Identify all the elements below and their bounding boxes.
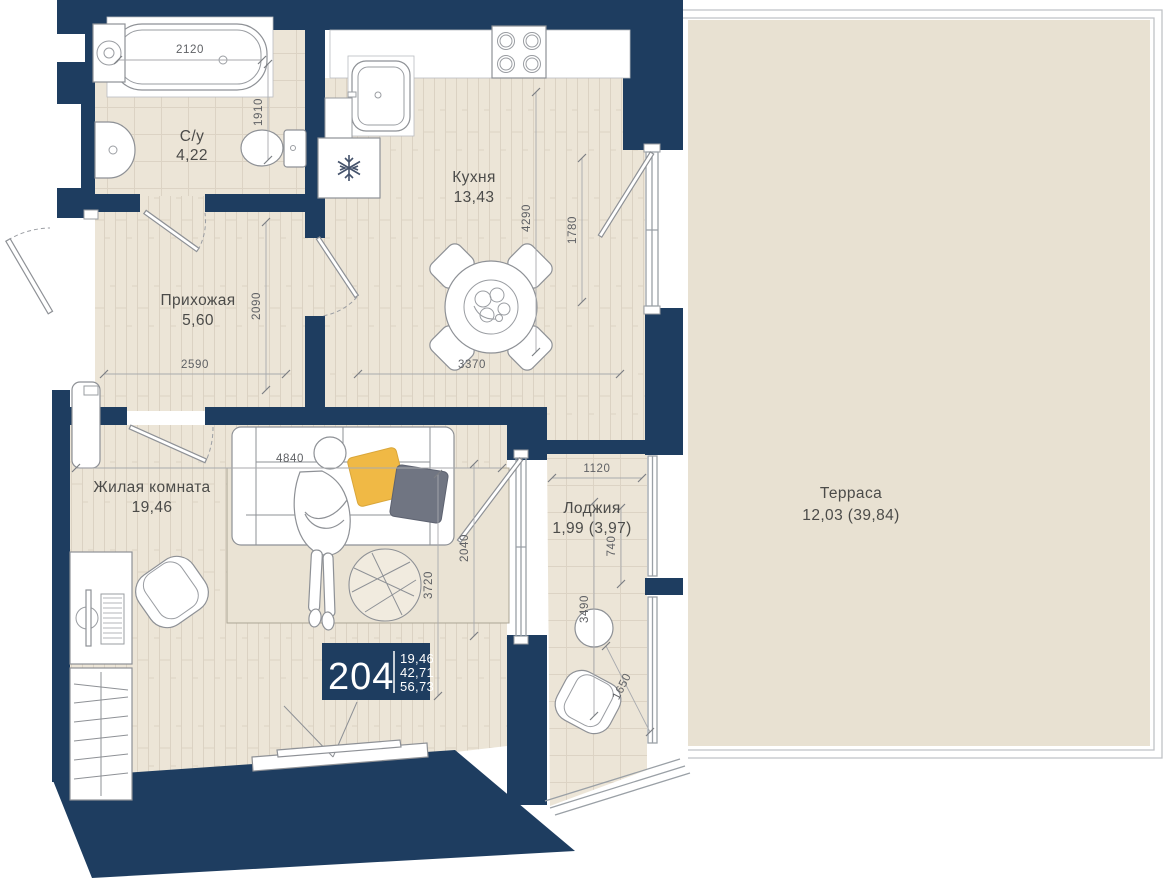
- unit-area-2: 42,71: [400, 665, 434, 680]
- svg-text:2040: 2040: [459, 534, 471, 562]
- bath-hall-wall-left: [92, 194, 140, 212]
- svg-text:740: 740: [606, 536, 618, 557]
- terrace-floor: [688, 20, 1150, 746]
- svg-text:2590: 2590: [181, 359, 209, 371]
- top-right-corner-wall: [623, 0, 683, 150]
- hall-kitchen-wall-a: [305, 212, 325, 238]
- loggia-area: 1,99 (3,97): [552, 520, 631, 537]
- unit-area-1: 19,46: [400, 651, 434, 666]
- unit-area-3: 56,73: [400, 679, 434, 694]
- hall-living-wall-right: [205, 407, 547, 425]
- loggia-divider-bottom: [507, 635, 547, 805]
- terrace-area: 12,03 (39,84): [802, 507, 899, 524]
- svg-text:4290: 4290: [521, 204, 533, 232]
- svg-text:3720: 3720: [423, 571, 435, 599]
- living-label: Жилая комната: [93, 479, 210, 496]
- unit-number: 204: [328, 656, 394, 698]
- kitchen-niche: [325, 98, 352, 140]
- wall-notch: [57, 104, 81, 188]
- right-mid-wall: [645, 308, 683, 455]
- svg-text:4840: 4840: [276, 453, 304, 465]
- loggia-windows: [648, 456, 657, 743]
- hallway-label: Прихожая: [160, 292, 235, 309]
- hall-kitchen-wall-b: [305, 316, 325, 411]
- hallway-area: 5,60: [182, 312, 214, 329]
- fridge: [318, 138, 380, 198]
- round-rug: [349, 549, 421, 621]
- svg-text:1910: 1910: [253, 98, 265, 126]
- left-main-wall: [52, 390, 70, 782]
- washing-machine-icon: [93, 24, 125, 82]
- desk-group: [70, 552, 132, 664]
- svg-text:2090: 2090: [251, 292, 263, 320]
- entrance-door: [6, 210, 98, 395]
- wardrobe-icon: [70, 668, 132, 800]
- svg-text:2120: 2120: [176, 44, 204, 56]
- svg-text:1120: 1120: [583, 463, 610, 475]
- monitor-icon: [86, 590, 91, 646]
- bathroom-label: С/у: [180, 128, 204, 145]
- bathroom-area: 4,22: [176, 147, 208, 164]
- floor-plan-svg: 2120 1910 2590 2090 4290 1780: [0, 0, 1173, 880]
- svg-text:3490: 3490: [579, 595, 591, 623]
- bathtub-icon: [112, 24, 267, 90]
- kitchen-area: 13,43: [454, 189, 495, 206]
- wall-notch: [57, 34, 85, 62]
- loggia-label: Лоджия: [563, 500, 620, 517]
- pillow-gray: [389, 464, 448, 523]
- unit-badge: 204 19,46 42,71 56,73: [322, 643, 434, 700]
- svg-text:3370: 3370: [458, 359, 486, 371]
- keyboard-icon: [101, 594, 124, 644]
- loggia-top-wall: [547, 440, 683, 454]
- loggia-right-chunk: [645, 578, 683, 595]
- stove-icon: [492, 26, 546, 78]
- toilet-icon: [241, 130, 306, 167]
- floor-plan-page: 2120 1910 2590 2090 4290 1780: [0, 0, 1173, 880]
- svg-text:1780: 1780: [567, 216, 579, 244]
- living-area: 19,46: [132, 499, 173, 516]
- kitchen-sink-icon: [348, 56, 414, 136]
- terrace-label: Терраса: [820, 485, 882, 502]
- kitchen-label: Кухня: [452, 169, 495, 186]
- bath-hall-wall-right: [205, 194, 325, 212]
